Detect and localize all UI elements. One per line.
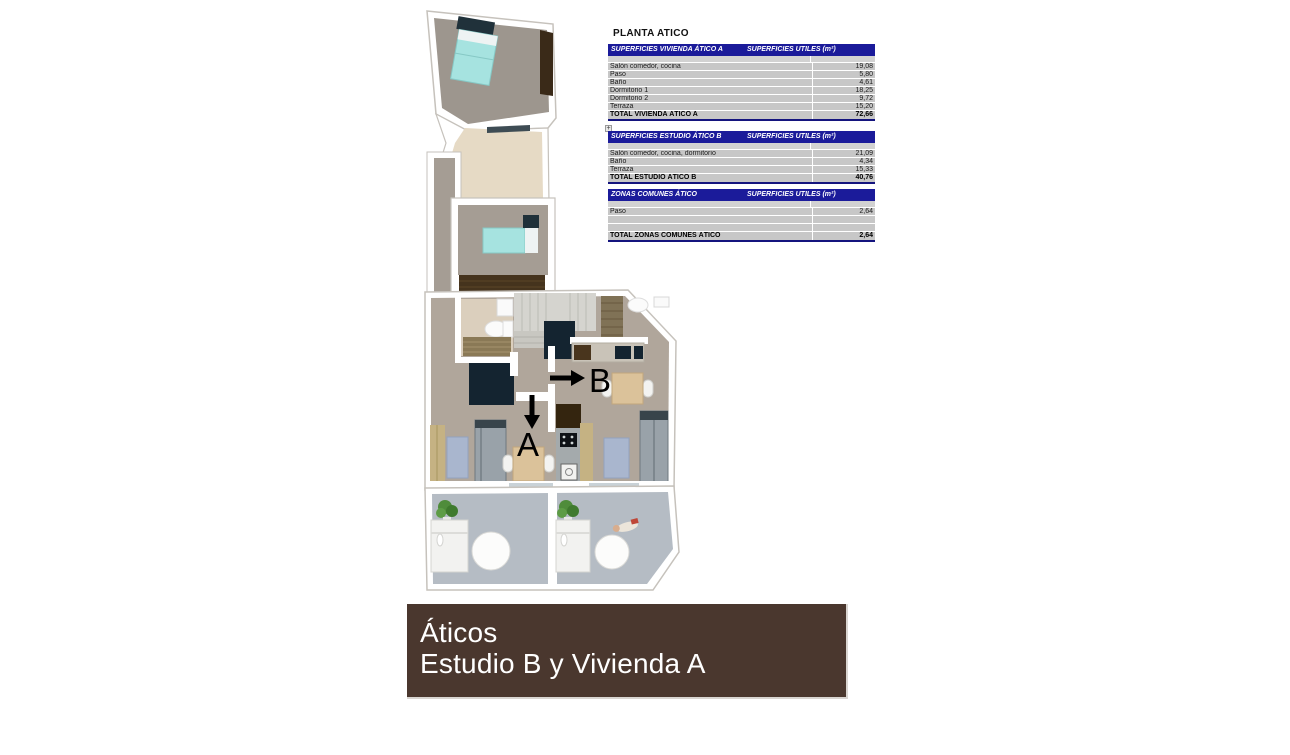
round-table-right — [595, 535, 629, 569]
round-table-left — [472, 532, 510, 570]
table-total-row: TOTAL ESTUDIO ÁTICO B40,76 — [608, 174, 875, 184]
skylight-void — [469, 363, 514, 405]
table-row: Dormitorio 29,72 — [608, 95, 875, 103]
unit-a-label: A — [517, 426, 539, 463]
sofa-a — [475, 420, 506, 486]
units-header: SUPERFICIES UTILES (m²) — [747, 44, 836, 56]
table-title: SUPERFICIES ESTUDIO ÁTICO B — [611, 131, 721, 143]
table-row: Salón comedor, cocina19,08 — [608, 63, 875, 71]
wardrobe — [540, 30, 553, 96]
table-row: Baño4,61 — [608, 79, 875, 87]
stairs-wood — [463, 337, 511, 356]
cooktop — [560, 433, 577, 447]
banner-line2: Estudio B y Vivienda A — [420, 648, 846, 679]
closet-strip — [459, 275, 545, 292]
table-row: Paso2,64 — [608, 208, 875, 216]
sink — [497, 299, 513, 316]
area-tables-sheet: PLANTA ATICO + SUPERFICIES VIVIENDA ÁTIC… — [608, 28, 875, 242]
kitchen-a — [556, 404, 581, 486]
table-row: Paso5,80 — [608, 71, 875, 79]
bedroom-2 — [451, 198, 555, 294]
table-row: Dormitorio 118,25 — [608, 87, 875, 95]
cabinet-gold-right — [580, 423, 593, 484]
table-row — [608, 216, 875, 224]
units-header: SUPERFICIES UTILES (m²) — [747, 189, 836, 201]
sink-b — [654, 297, 669, 307]
table-row — [608, 224, 875, 232]
terraces-lower — [425, 486, 679, 590]
table-row: Baño4,34 — [608, 158, 875, 166]
table-row: Terraza15,20 — [608, 103, 875, 111]
bedroom-1 — [427, 11, 556, 131]
table-zonas-comunes: ZONAS COMUNES ÁTICO SUPERFICIES UTILES (… — [608, 189, 875, 242]
toilet-b — [628, 298, 648, 312]
table-header: SUPERFICIES VIVIENDA ÁTICO A SUPERFICIES… — [608, 44, 875, 56]
lounger-left — [431, 520, 468, 572]
sofa-b — [640, 411, 668, 484]
rug-right — [604, 438, 629, 478]
oven — [561, 464, 577, 480]
table-title: SUPERFICIES VIVIENDA ÁTICO A — [611, 44, 723, 56]
table-row: Salón comedor, cocina, dormitorio21,09 — [608, 150, 875, 158]
banner-line1: Áticos — [420, 617, 846, 648]
table-vivienda-a: SUPERFICIES VIVIENDA ÁTICO A SUPERFICIES… — [608, 44, 875, 121]
studio-b-kitchenette — [570, 337, 648, 362]
main-living-block — [425, 290, 676, 490]
units-header: SUPERFICIES UTILES (m²) — [747, 131, 836, 143]
table-header: ZONAS COMUNES ÁTICO SUPERFICIES UTILES (… — [608, 189, 875, 201]
title-banner: Áticos Estudio B y Vivienda A — [407, 604, 848, 699]
table-title: ZONAS COMUNES ÁTICO — [611, 189, 697, 201]
lounger-right — [556, 520, 590, 572]
plan-title: PLANTA ATICO — [613, 28, 875, 40]
table-row: Terraza15,33 — [608, 166, 875, 174]
unit-b-label: B — [589, 362, 611, 399]
table-header: SUPERFICIES ESTUDIO ÁTICO B SUPERFICIES … — [608, 131, 875, 143]
table-total-row: TOTAL ZONAS COMUNES ÁTICO2,64 — [608, 232, 875, 242]
page: B A PLANTA ATICO + SUPERFICIES VIVIENDA … — [0, 0, 1290, 755]
stairs-b — [601, 296, 623, 343]
table-estudio-b: SUPERFICIES ESTUDIO ÁTICO B SUPERFICIES … — [608, 131, 875, 184]
rug-left — [447, 437, 468, 478]
table-total-row: TOTAL VIVIENDA ÁTICO A72,66 — [608, 111, 875, 121]
